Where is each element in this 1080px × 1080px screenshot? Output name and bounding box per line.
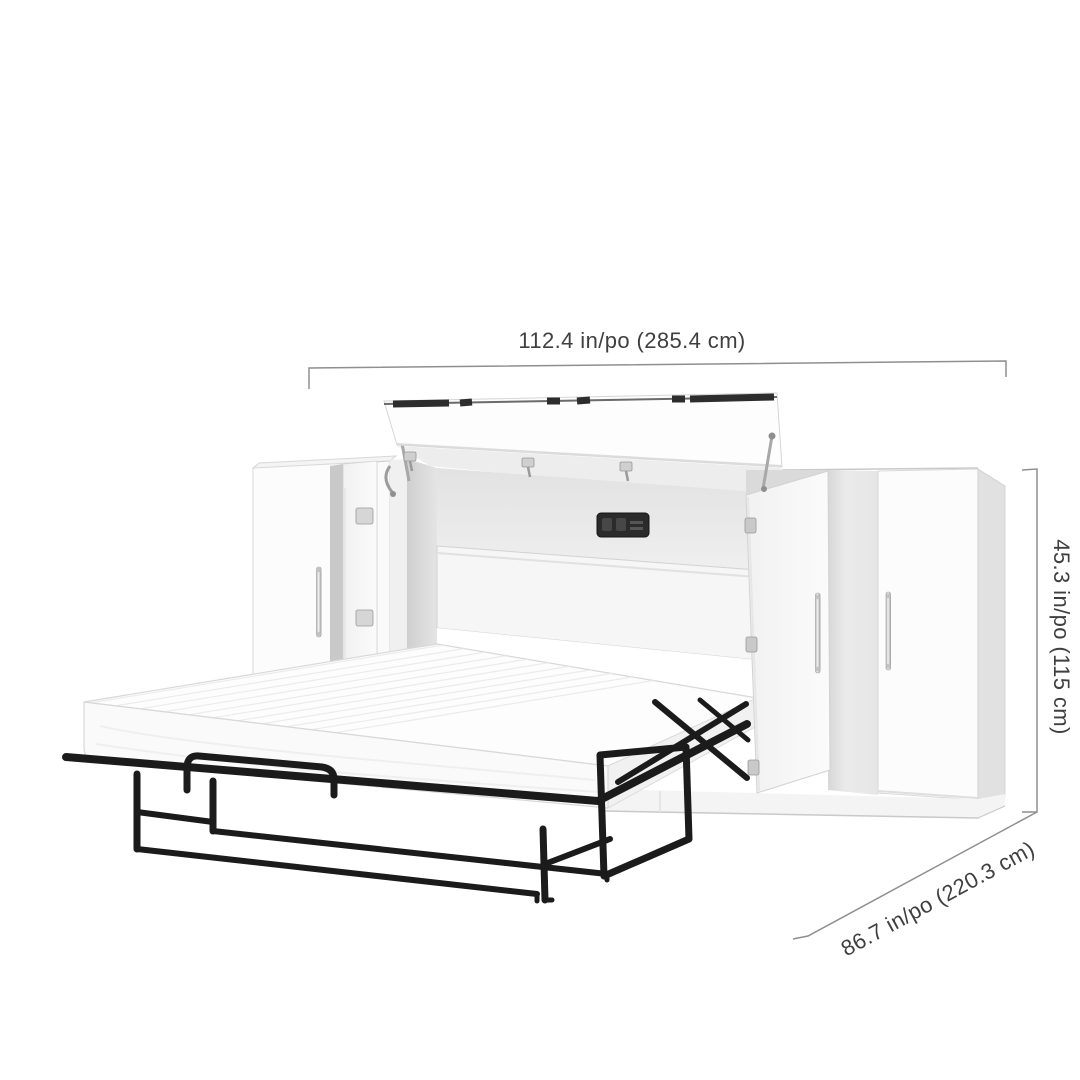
power-outlet-strip <box>597 513 649 537</box>
right-door-open <box>745 433 830 794</box>
right-cabinet-handle <box>886 592 891 670</box>
product-dimension-diagram: 112.4 in/po (285.4 cm) 45.3 in/po (115 c… <box>0 0 1080 1080</box>
left-cabinet-handle <box>317 567 322 637</box>
width-dimension-line <box>309 361 1006 389</box>
right-door-handle <box>816 593 821 673</box>
width-dimension-label: 112.4 in/po (285.4 cm) <box>518 328 745 354</box>
height-dimension-line <box>1022 469 1037 812</box>
right-storage-cabinet <box>878 469 1005 800</box>
right-compartment-recess <box>828 470 878 795</box>
height-dimension-label: 45.3 in/po (115 cm) <box>1048 539 1074 735</box>
